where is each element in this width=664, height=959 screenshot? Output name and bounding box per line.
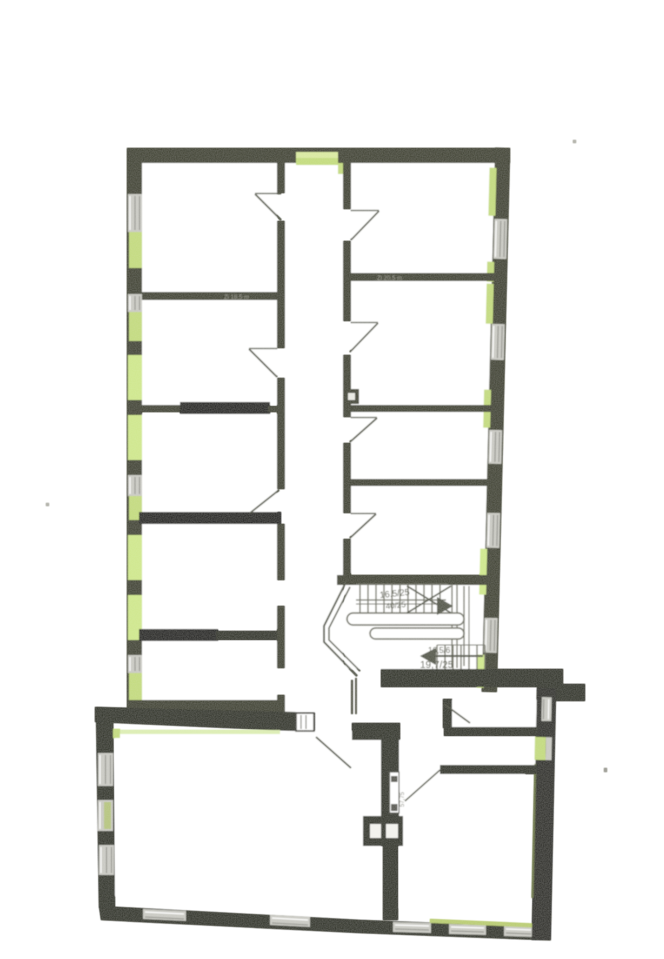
svg-text:16,5/6: 16,5/6 xyxy=(428,646,451,655)
svg-text:Zi 20,5 m: Zi 20,5 m xyxy=(377,276,402,282)
svg-text:Zi 18,5 m: Zi 18,5 m xyxy=(224,295,249,301)
svg-text:57,75: 57,75 xyxy=(400,791,406,807)
